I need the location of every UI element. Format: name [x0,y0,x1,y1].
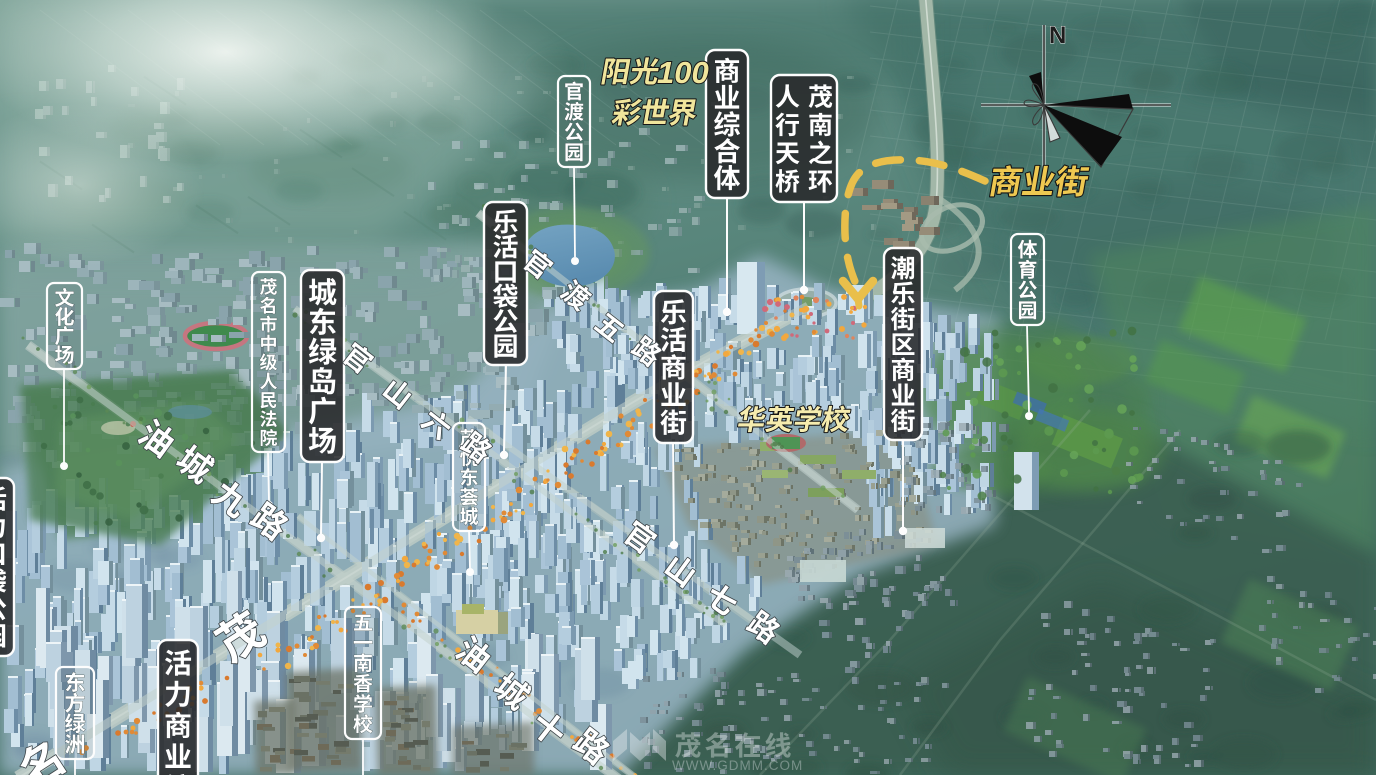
svg-text:100: 100 [657,55,709,90]
svg-text:WWW.GDMM.COM: WWW.GDMM.COM [672,758,803,773]
svg-text:N: N [1049,22,1066,49]
